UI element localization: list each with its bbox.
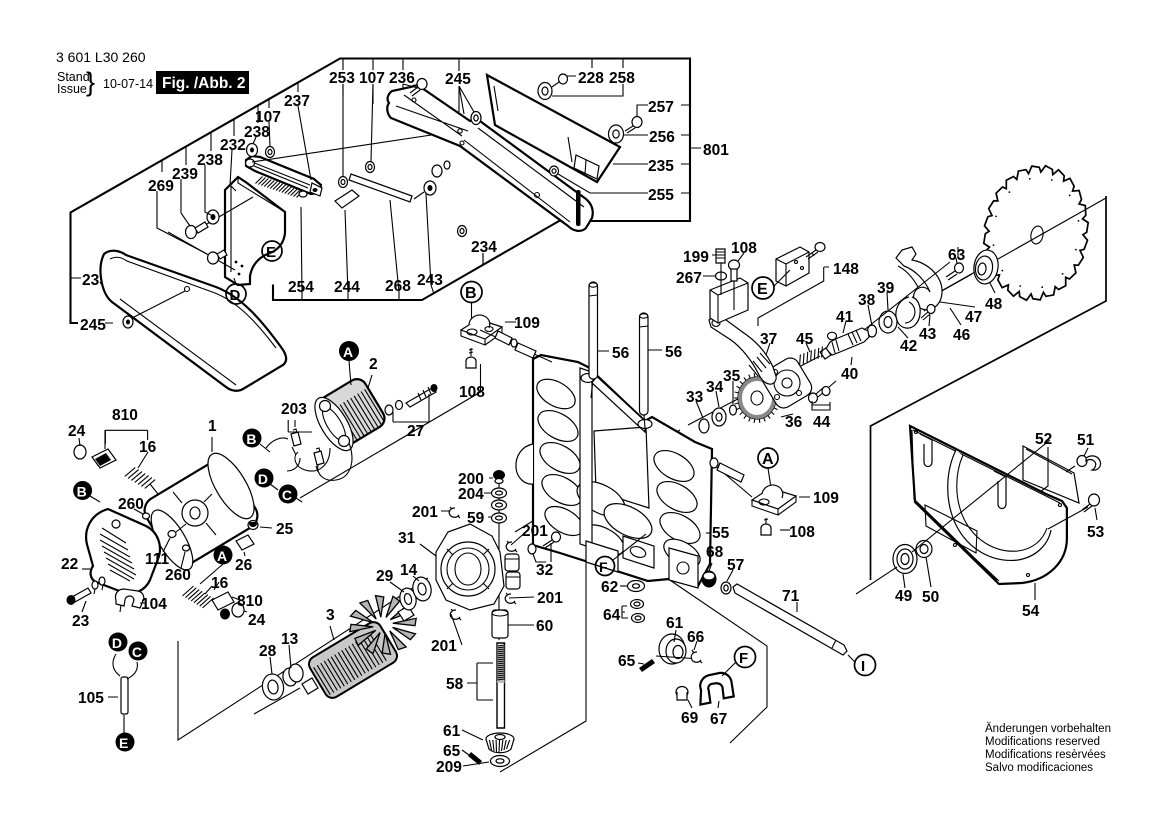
svg-text:801: 801: [703, 142, 729, 159]
svg-text:108: 108: [459, 384, 485, 401]
svg-text:64: 64: [603, 607, 621, 624]
svg-text:32: 32: [536, 562, 553, 579]
svg-text:26: 26: [235, 557, 253, 574]
svg-text:24: 24: [68, 423, 86, 440]
svg-text:A: A: [762, 451, 774, 468]
svg-text:37: 37: [760, 331, 777, 348]
svg-text:42: 42: [900, 338, 917, 355]
svg-text:E: E: [757, 281, 768, 298]
svg-text:65: 65: [618, 653, 636, 670]
svg-text:A: A: [217, 548, 227, 564]
svg-text:810: 810: [237, 593, 263, 610]
svg-text:111: 111: [145, 551, 170, 568]
svg-text:235: 235: [648, 158, 674, 175]
svg-text:F: F: [739, 650, 748, 667]
svg-text:B: B: [465, 285, 477, 302]
svg-text:E: E: [266, 244, 276, 261]
svg-text:}: }: [86, 67, 95, 97]
svg-text:44: 44: [813, 414, 831, 431]
svg-text:107: 107: [359, 70, 385, 87]
svg-text:238: 238: [197, 152, 223, 169]
svg-text:56: 56: [612, 345, 630, 362]
svg-text:41: 41: [836, 309, 854, 326]
svg-text:Issue: Issue: [57, 82, 87, 96]
svg-text:Modifications resèrvées: Modifications resèrvées: [985, 749, 1106, 761]
svg-text:3: 3: [326, 607, 335, 624]
svg-text:109: 109: [514, 315, 540, 332]
svg-text:3 601 L30 260: 3 601 L30 260: [56, 49, 146, 65]
svg-text:108: 108: [789, 524, 815, 541]
svg-text:I: I: [861, 658, 865, 675]
svg-text:49: 49: [895, 588, 913, 605]
svg-text:10-07-14: 10-07-14: [103, 77, 153, 91]
svg-text:238: 238: [244, 124, 270, 141]
svg-text:254: 254: [288, 279, 314, 296]
svg-text:62: 62: [601, 579, 618, 596]
svg-text:34: 34: [706, 379, 724, 396]
svg-text:66: 66: [687, 629, 705, 646]
svg-text:245: 245: [445, 71, 471, 88]
svg-text:67: 67: [710, 711, 727, 728]
svg-text:28: 28: [259, 643, 277, 660]
svg-text:57: 57: [727, 557, 744, 574]
svg-text:39: 39: [877, 280, 895, 297]
svg-text:239: 239: [172, 166, 198, 183]
svg-text:65: 65: [443, 743, 461, 760]
svg-text:245: 245: [80, 317, 106, 334]
svg-text:56: 56: [665, 344, 683, 361]
svg-text:35: 35: [723, 368, 741, 385]
svg-text:45: 45: [796, 331, 814, 348]
svg-text:47: 47: [965, 309, 982, 326]
svg-text:24: 24: [248, 612, 266, 629]
svg-text:16: 16: [139, 439, 157, 456]
svg-text:14: 14: [400, 562, 418, 579]
svg-text:E: E: [119, 735, 128, 751]
svg-text:2: 2: [369, 356, 378, 373]
svg-text:203: 203: [281, 401, 307, 418]
svg-text:Modifications reserved: Modifications reserved: [985, 736, 1100, 748]
svg-text:63: 63: [948, 247, 966, 264]
svg-text:260: 260: [118, 496, 144, 513]
svg-text:31: 31: [398, 530, 416, 547]
svg-text:232: 232: [220, 137, 246, 154]
svg-text:201: 201: [522, 523, 548, 540]
svg-text:228: 228: [578, 70, 604, 87]
svg-text:B: B: [77, 484, 87, 500]
svg-text:Salvo modificaciones: Salvo modificaciones: [985, 762, 1093, 774]
svg-text:D: D: [230, 287, 241, 304]
svg-text:43: 43: [919, 326, 937, 343]
svg-text:27: 27: [407, 423, 424, 440]
svg-text:201: 201: [537, 590, 563, 607]
svg-text:A: A: [343, 344, 353, 360]
svg-text:61: 61: [443, 723, 461, 740]
svg-text:68: 68: [706, 544, 724, 561]
svg-text:148: 148: [833, 261, 859, 278]
svg-text:60: 60: [536, 618, 553, 635]
svg-text:Fig. /Abb. 2: Fig. /Abb. 2: [162, 75, 246, 92]
svg-text:36: 36: [785, 414, 803, 431]
svg-text:237: 237: [284, 93, 310, 110]
svg-text:258: 258: [609, 70, 635, 87]
svg-text:61: 61: [666, 615, 684, 632]
svg-text:108: 108: [731, 240, 757, 257]
svg-text:269: 269: [148, 178, 174, 195]
svg-text:810: 810: [112, 407, 138, 424]
svg-text:25: 25: [276, 521, 294, 538]
svg-text:54: 54: [1022, 603, 1040, 620]
svg-text:204: 204: [458, 486, 484, 503]
svg-text:F: F: [599, 559, 608, 575]
svg-text:201: 201: [412, 504, 438, 521]
svg-text:53: 53: [1087, 524, 1105, 541]
svg-text:209: 209: [436, 759, 462, 776]
svg-text:255: 255: [648, 187, 674, 204]
svg-text:234: 234: [471, 239, 497, 256]
svg-text:16: 16: [211, 575, 229, 592]
svg-text:38: 38: [858, 292, 876, 309]
svg-text:58: 58: [446, 676, 464, 693]
svg-text:267: 267: [676, 270, 702, 287]
svg-text:48: 48: [985, 296, 1003, 313]
svg-text:257: 257: [648, 99, 674, 116]
svg-text:46: 46: [953, 327, 971, 344]
svg-text:71: 71: [782, 588, 800, 605]
svg-text:59: 59: [467, 510, 485, 527]
svg-text:D: D: [112, 635, 122, 651]
svg-text:40: 40: [841, 366, 858, 383]
svg-text:256: 256: [649, 129, 675, 146]
svg-text:D: D: [258, 471, 268, 487]
svg-text:260: 260: [165, 567, 191, 584]
svg-text:C: C: [282, 487, 292, 503]
svg-text:50: 50: [922, 589, 939, 606]
svg-text:55: 55: [712, 525, 730, 542]
svg-text:69: 69: [681, 710, 699, 727]
svg-text:236: 236: [389, 70, 415, 87]
svg-text:105: 105: [78, 690, 104, 707]
svg-text:29: 29: [376, 568, 394, 585]
svg-text:B: B: [246, 431, 256, 447]
svg-text:201: 201: [431, 638, 457, 655]
svg-text:52: 52: [1035, 431, 1052, 448]
svg-text:199: 199: [683, 249, 709, 266]
svg-text:C: C: [132, 644, 142, 660]
svg-text:51: 51: [1077, 432, 1095, 449]
svg-text:1: 1: [208, 418, 217, 435]
svg-text:33: 33: [686, 389, 704, 406]
svg-text:104: 104: [141, 596, 167, 613]
svg-text:13: 13: [281, 631, 299, 648]
svg-text:109: 109: [813, 490, 839, 507]
svg-text:Änderungen vorbehalten: Änderungen vorbehalten: [985, 723, 1111, 735]
svg-text:23: 23: [72, 613, 90, 630]
svg-text:253: 253: [329, 70, 355, 87]
svg-text:22: 22: [61, 556, 78, 573]
